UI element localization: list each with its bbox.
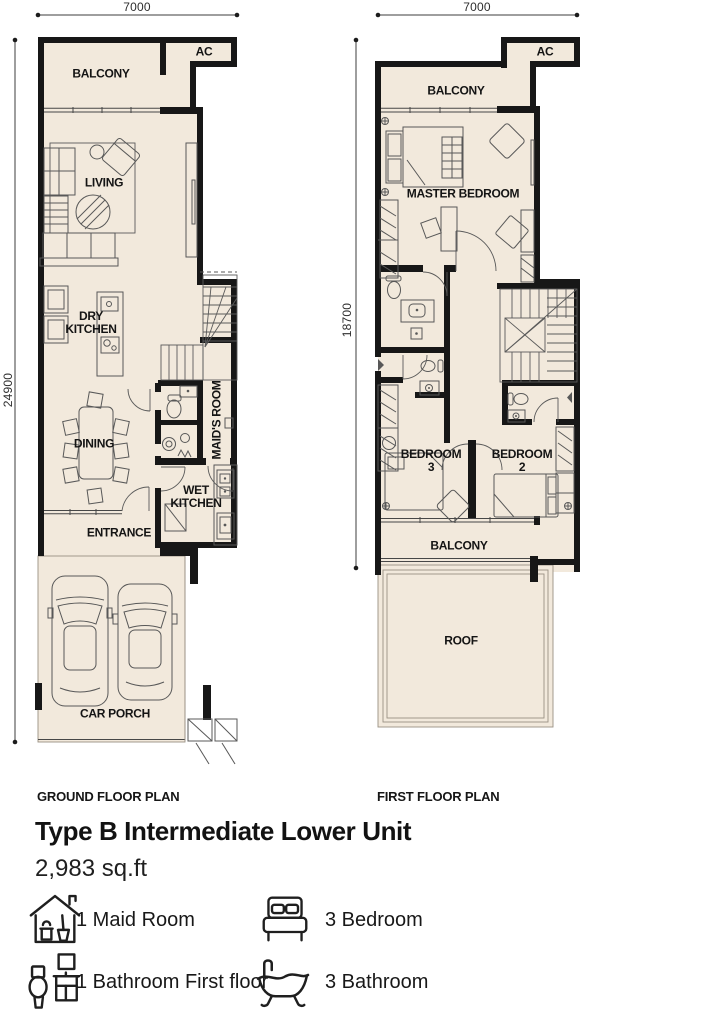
room-label-wet-kitchen: WET KITCHEN <box>166 484 226 510</box>
room-label-bedroom-2: BEDROOM 2 <box>491 448 553 474</box>
ground-floor-plan-drawing <box>35 37 237 764</box>
bedroom-icon <box>256 893 314 950</box>
first-floor-caption: FIRST FLOOR PLAN <box>377 789 499 804</box>
first-floor-plan-drawing <box>375 37 580 727</box>
room-label-dry-kitchen: DRY KITCHEN <box>63 310 119 336</box>
room-label-balcony-bottom: BALCONY <box>430 540 487 553</box>
ground-width-dimension: 7000 <box>123 0 151 14</box>
ground-height-dimension: 24900 <box>1 373 15 407</box>
floor-plans-drawing <box>0 0 724 782</box>
room-label-ac-first: AC <box>537 46 554 59</box>
room-label-bedroom-3: BEDROOM 3 <box>400 448 462 474</box>
feature-maid-room-label: 1 Maid Room <box>76 909 195 932</box>
feature-bathroom-first-floor-label: 1 Bathroom First floor <box>76 971 268 994</box>
room-label-maids-room: MAID'S ROOM <box>211 381 224 460</box>
feature-bedroom-label: 3 Bedroom <box>325 909 423 932</box>
room-label-master-bedroom: MASTER BEDROOM <box>407 188 519 201</box>
room-label-balcony-top: BALCONY <box>427 85 484 98</box>
room-label-roof: ROOF <box>444 635 477 648</box>
room-label-ac-ground: AC <box>196 46 213 59</box>
first-height-dimension: 18700 <box>340 303 354 337</box>
room-label-entrance: ENTRANCE <box>87 527 151 540</box>
room-label-car-porch: CAR PORCH <box>80 708 150 721</box>
room-label-balcony-ground: BALCONY <box>72 68 129 81</box>
floor-plan-page: 7000 7000 24900 18700 AC BALCONY LIVING … <box>0 0 724 1024</box>
bathtub-icon <box>252 950 314 1015</box>
unit-title: Type B Intermediate Lower Unit <box>35 816 411 847</box>
feature-bathroom-label: 3 Bathroom <box>325 971 428 994</box>
ground-floor-caption: GROUND FLOOR PLAN <box>37 789 179 804</box>
room-label-living: LIVING <box>85 177 123 190</box>
first-width-dimension: 7000 <box>463 0 491 14</box>
unit-area: 2,983 sq.ft <box>35 855 147 883</box>
room-label-dining: DINING <box>74 438 114 451</box>
